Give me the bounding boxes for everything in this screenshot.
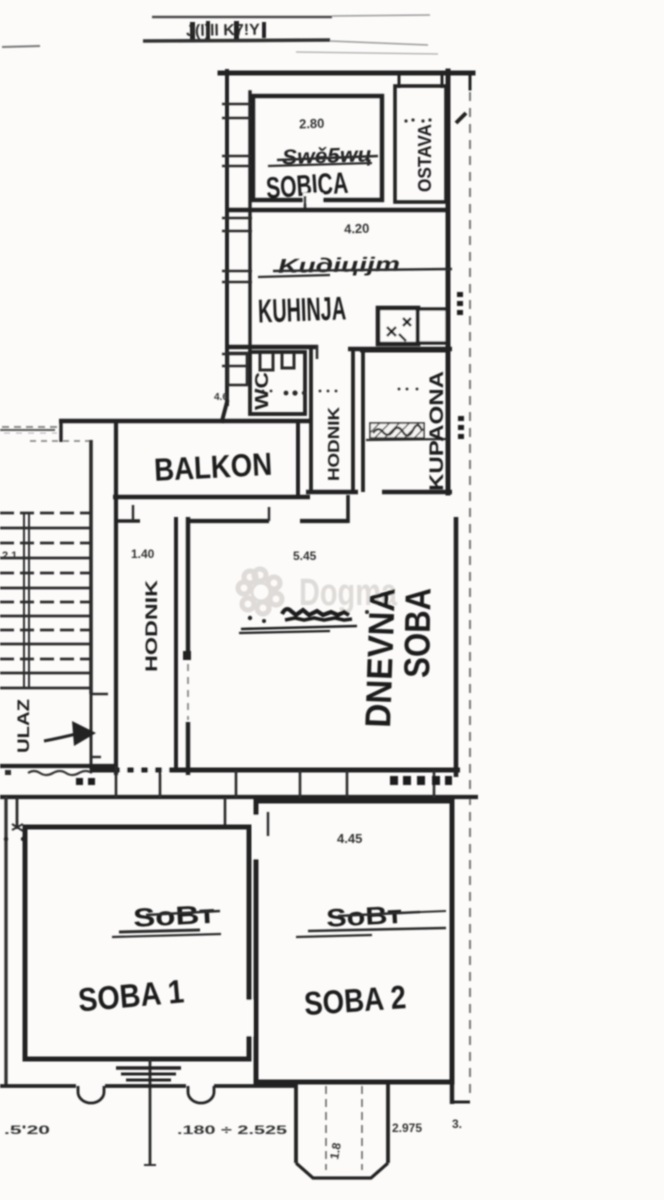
svg-text:1.8: 1.8 (327, 1141, 344, 1160)
svg-text:4.45: 4.45 (337, 831, 362, 846)
svg-text:BALKON: BALKON (153, 446, 273, 488)
svg-text:ULAZ: ULAZ (14, 699, 33, 753)
svg-text:SOBA 2: SOBA 2 (303, 978, 407, 1022)
svg-text:ЅоВт: ЅоВт (132, 899, 216, 933)
svg-text:1.40: 1.40 (131, 547, 155, 561)
svg-text:2.80: 2.80 (299, 116, 325, 132)
svg-text:OSTAVA: OSTAVA (415, 124, 435, 192)
svg-text:.180 ÷ 2.525: .180 ÷ 2.525 (177, 1123, 288, 1137)
svg-text:SOBA: SOBA (396, 587, 439, 678)
svg-text:HODNIK: HODNIK (326, 406, 343, 481)
svg-text:KUPAONA: KUPAONA (427, 371, 448, 491)
svg-text:4.20: 4.20 (344, 221, 370, 237)
svg-text:5.45: 5.45 (293, 549, 317, 563)
svg-text:KUHINJA: KUHINJA (257, 289, 346, 329)
svg-text:2.975: 2.975 (392, 1121, 422, 1135)
svg-text:2.1: 2.1 (2, 550, 17, 562)
svg-text:HODNIK: HODNIK (142, 579, 161, 672)
svg-text:.5'20: .5'20 (4, 1123, 51, 1137)
svg-text:J(l)ll K7!Y: J(l)ll K7!Y (186, 22, 260, 40)
svg-text:3.: 3. (452, 1117, 462, 1131)
svg-text:Kидiцiјт: Kидiцiјт (278, 254, 400, 278)
svg-text:4.6: 4.6 (214, 392, 228, 403)
